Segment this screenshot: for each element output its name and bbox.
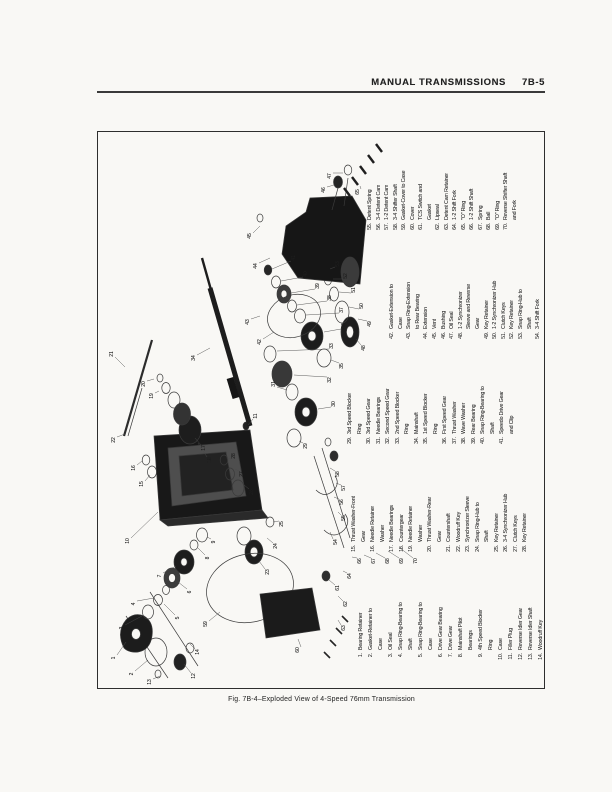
diagram-callout-number: 8 <box>205 557 211 560</box>
legend-item: 35.1st Speed BlockerRing <box>422 386 441 450</box>
diagram-callout-number: 17 <box>201 445 207 451</box>
diagram-callout-number: 53 <box>335 261 341 267</box>
diagram-callout-number: 63 <box>341 625 347 631</box>
legend-item: 31.Needle Bearings <box>375 386 385 450</box>
legend-item: 67.Spring <box>477 171 486 236</box>
diagram-callout-number: 40 <box>303 271 309 277</box>
legend-item: 30.3rd Speed Gear <box>365 386 375 450</box>
legend-item-label: Bearing Retainer <box>356 613 366 650</box>
legend-item-number: 58. <box>392 220 401 236</box>
diagram-callout-number: 39 <box>315 283 321 289</box>
legend-item-label: Needle Bearings <box>388 505 398 542</box>
legend-item-number: 52. <box>508 329 517 345</box>
diagram-callout-number: 59 <box>203 621 209 627</box>
legend-item-number: 44. <box>422 329 431 345</box>
diagram-callout-number: 33 <box>329 343 335 349</box>
diagram-callout-number: 35 <box>339 363 345 369</box>
legend-item: 34.Mainshaft <box>413 386 423 450</box>
legend-item: 16.Needle RetainerWasher <box>369 494 388 558</box>
legend-item-label: Detent Cam Retainer <box>443 173 452 220</box>
diagram-callout-number: 57 <box>341 485 347 491</box>
legend-item: 32.Second Speed Gear <box>384 386 394 450</box>
running-head: MANUAL TRANSMISSIONS7B-5 <box>371 77 545 88</box>
legend-item: 44.Extension <box>422 281 431 345</box>
diagram-callout-number: 47 <box>327 173 333 179</box>
legend-item: 50.1-2 Synchronizer Hub <box>491 281 500 345</box>
legend-column-4: 42.Gasket-Extension toCase43.Snap Ring-E… <box>388 281 543 345</box>
legend-item-label: 3rd Speed Gear <box>365 398 375 434</box>
legend-item: 58.3-4 Shifter Shaft <box>392 171 401 236</box>
diagram-callout-number: 68 <box>385 558 391 564</box>
diagram-callout-number: 69 <box>399 558 405 564</box>
diagram-callout-number: 56 <box>339 499 345 505</box>
legend-item-number: 48. <box>457 329 466 345</box>
legend-item-label: 1-2 Shift Fork <box>451 190 460 220</box>
legend-item-label: Needle RetainerWasher <box>407 506 426 542</box>
diagram-callout-number: 9 <box>211 541 217 544</box>
legend-item: 2.Gasket-Retainer toCase <box>366 602 386 666</box>
legend-item-label: Woodruff Key <box>536 620 545 650</box>
legend-item: 57.1-2 Detent Cam <box>383 171 392 236</box>
legend-item: 63.Detent Cam Retainer <box>443 171 452 236</box>
diagram-callout-number: 13 <box>147 679 153 685</box>
legend-item-number: 62. <box>434 220 443 236</box>
legend-item-label: Thrust Washer-RearGear <box>426 497 445 542</box>
legend-item-label: Detent Spring <box>366 190 375 220</box>
legend-item-label: Snap Ring-Hub toShaft <box>474 502 493 542</box>
legend-item-number: 57. <box>383 220 392 236</box>
legend-item-number: 19. <box>407 542 417 558</box>
legend-item-label: Key Retainer <box>508 300 517 329</box>
legend-item: 8.Mainshaft PilotBearings <box>456 602 476 666</box>
diagram-callout-number: 7 <box>157 575 163 578</box>
legend-item-number: 34. <box>413 434 423 450</box>
legend-item: 42.Gasket-Extension toCase <box>388 281 405 345</box>
legend-item: 21.Countershaft <box>445 494 455 558</box>
legend-item-number: 42. <box>388 329 397 345</box>
diagram-callout-number: 58 <box>335 471 341 477</box>
legend-item: 12.Reverse Idler Gear <box>516 602 526 666</box>
page-number: 7B-5 <box>522 77 545 88</box>
legend-item-number: 25. <box>493 542 503 558</box>
legend-item-label: Second Speed Gear <box>384 389 394 434</box>
diagram-callout-number: 27 <box>239 471 245 477</box>
legend-item-number: 18. <box>398 542 408 558</box>
diagram-callout-number: 37 <box>339 307 345 313</box>
running-head-title: MANUAL TRANSMISSIONS <box>371 77 506 88</box>
legend-item-label: Gasket-Cover to Case <box>400 171 409 220</box>
legend-item-number: 15. <box>350 542 360 558</box>
legend-item-label: Oil Seal <box>386 633 396 650</box>
legend-item-label: Countershaft <box>445 513 455 542</box>
legend-column-5: 55.Detent Spring56.3-4 Detent Cam57.1-2 … <box>366 171 519 236</box>
diagram-callout-number: 64 <box>347 573 353 579</box>
legend-item: 1.Bearing Retainer <box>356 602 366 666</box>
legend-item: 62.Lipseal <box>434 171 443 236</box>
legend-item-number: 9. <box>476 650 486 666</box>
legend-item-label: 2nd Speed BlockerRing <box>394 392 413 434</box>
diagram-callout-number: 5 <box>175 617 181 620</box>
legend-item: 66.1-2 Shift Shaft <box>468 171 477 236</box>
diagram-callout-number: 45 <box>247 233 253 239</box>
legend-item-number: 3. <box>386 650 396 666</box>
legend-item: 38.Wave Washer <box>460 386 470 450</box>
legend-item-number: 35. <box>422 434 432 450</box>
diagram-callout-number: 2 <box>129 673 135 676</box>
legend-item: 53.Snap Ring-Hub toShaft <box>517 281 534 345</box>
legend-item-label: Wave Washer <box>460 403 470 434</box>
legend-item-label: Vent <box>431 319 440 329</box>
legend-item-number: 20. <box>426 542 436 558</box>
legend-item-label: 4th Speed BlockerRing <box>476 609 496 650</box>
legend-item-label: Reverse Idler Shaft <box>526 608 536 651</box>
legend-item-number: 31. <box>375 434 385 450</box>
legend-item: 23.Synchronizer Sleeve <box>464 494 474 558</box>
legend-item: 19.Needle RetainerWasher <box>407 494 426 558</box>
diagram-callout-number: 30 <box>331 401 337 407</box>
diagram-callout-number: 16 <box>131 465 137 471</box>
legend-item-number: 45. <box>431 329 440 345</box>
diagram-callout-number: 66 <box>357 558 363 564</box>
legend-item-label: TCS Switch andGasket <box>417 184 434 220</box>
legend-item-number: 8. <box>456 650 466 666</box>
diagram-callout-number: 38 <box>327 295 333 301</box>
figure-caption: Fig. 7B-4–Exploded View of 4-Speed 76mm … <box>97 696 546 703</box>
legend-item-label: 3-4 Shifter Shaft <box>392 184 401 220</box>
legend-item-label: Bushing <box>440 311 449 329</box>
legend-item-number: 41. <box>498 434 508 450</box>
legend-item: 39.Rear Bearing <box>470 386 480 450</box>
legend-item-number: 39. <box>470 434 480 450</box>
legend-item-number: 24. <box>474 542 484 558</box>
legend-item: 64.1-2 Shift Fork <box>451 171 460 236</box>
legend-item: 65."O" Ring <box>460 171 469 236</box>
legend-item: 13.Reverse Idler Shaft <box>526 602 536 666</box>
legend-item-label: Thrust Washer-FrontGear <box>350 496 369 542</box>
diagram-callout-number: 4 <box>131 603 137 606</box>
legend-item-label: Spring <box>477 206 486 220</box>
legend-item-number: 6. <box>436 650 446 666</box>
legend-item: 4.Snap Ring-Bearing toShaft <box>396 602 416 666</box>
legend-item-label: Snap Ring-Hub toShaft <box>517 289 534 329</box>
diagram-callout-number: 14 <box>195 649 201 655</box>
diagram-callout-number: 6 <box>187 591 193 594</box>
diagram-callout-number: 52 <box>343 273 349 279</box>
legend-item-label: Woodruff Key <box>455 512 465 542</box>
legend-item: 37.Thrust Washer <box>451 386 461 450</box>
legend-item: 56.3-4 Detent Cam <box>375 171 384 236</box>
diagram-callout-number: 34 <box>191 355 197 361</box>
header-rule <box>97 91 545 93</box>
legend-item: 28.Key Retainer <box>521 494 531 558</box>
legend-item: 20.Thrust Washer-RearGear <box>426 494 445 558</box>
legend-item-number: 37. <box>451 434 461 450</box>
legend-item-label: Drive Gear <box>446 626 456 650</box>
legend-item-label: Snap Ring-Extensionto Rear Bearing <box>405 282 422 329</box>
diagram-callout-number: 11 <box>253 413 259 418</box>
legend-item-label: Reverse Idler Gear <box>516 608 526 650</box>
legend-item: 54.3-4 Shift Fork <box>534 281 543 345</box>
legend-item: 14.Woodruff Key <box>536 602 545 666</box>
legend-item: 68.Ball <box>485 171 494 236</box>
figure-box: 1.Bearing Retainer2.Gasket-Retainer toCa… <box>97 131 545 689</box>
legend-item-number: 1. <box>356 650 366 666</box>
legend-item-number: 14. <box>536 650 545 666</box>
legend-item: 52.Key Retainer <box>508 281 517 345</box>
legend-item-label: Mainshaft <box>413 412 423 434</box>
legend-item-number: 61. <box>417 220 426 236</box>
legend-item: 46.Bushing <box>440 281 449 345</box>
legend-item: 36.First Speed Gear <box>441 386 451 450</box>
diagram-callout-number: 49 <box>367 321 373 327</box>
diagram-callout-number: 15 <box>139 481 145 487</box>
diagram-callout-number: 44 <box>253 263 259 269</box>
diagram-callout-number: 54 <box>333 539 339 545</box>
legend-column-3: 29.3rd Speed BlockerRing30.3rd Speed Gea… <box>346 386 517 450</box>
legend-item-label: Clutch Keys <box>512 515 522 542</box>
legend-item-label: Cover <box>409 207 418 220</box>
legend-item: 11.Filler Plug <box>506 602 516 666</box>
legend-item-label: Thrust Washer <box>451 401 461 434</box>
legend-item-number: 50. <box>491 329 500 345</box>
legend-item-label: Speedo Drive Gearand Clip <box>498 391 517 434</box>
legend-item-number: 49. <box>483 329 492 345</box>
legend-item-number: 30. <box>365 434 375 450</box>
legend-item-number: 28. <box>521 542 531 558</box>
legend-item-number: 21. <box>445 542 455 558</box>
legend-item: 60.Cover <box>409 171 418 236</box>
diagram-callout-number: 24 <box>273 543 279 549</box>
diagram-callout-number: 43 <box>245 319 251 325</box>
legend-item-number: 60. <box>409 220 418 236</box>
legend-item-number: 13. <box>526 650 536 666</box>
legend-item-number: 63. <box>443 220 452 236</box>
legend-item-label: Oil Seal <box>448 312 457 329</box>
legend-item-label: 1st Speed BlockerRing <box>422 394 441 434</box>
legend-item-number: 51. <box>500 329 509 345</box>
legend-item: 48.1-2 SynchronizerSleeve and ReverseGea… <box>457 281 483 345</box>
legend-item-number: 54. <box>534 329 543 345</box>
legend-item-label: "O" Ring <box>460 201 469 220</box>
legend-item-label: Ball <box>485 212 494 220</box>
diagram-callout-number: 70 <box>413 558 419 564</box>
legend-item: 45.Vent <box>431 281 440 345</box>
legend-item-label: Mainshaft PilotBearings <box>456 618 476 651</box>
legend-item-number: 59. <box>400 220 409 236</box>
legend-item-number: 26. <box>502 542 512 558</box>
diagram-callout-number: 31 <box>271 381 277 387</box>
legend-item-number: 47. <box>448 329 457 345</box>
legend-item: 15.Thrust Washer-FrontGear <box>350 494 369 558</box>
legend-item-label: Needle RetainerWasher <box>369 506 388 542</box>
diagram-callout-number: 65 <box>355 189 361 195</box>
legend-item-label: 1-2 SynchronizerSleeve and ReverseGear <box>457 284 483 329</box>
legend-item-label: Synchronizer Sleeve <box>464 496 474 542</box>
legend-item-label: Clutch Keys <box>500 302 509 329</box>
legend-item: 47.Oil Seal <box>448 281 457 345</box>
legend-item-label: 1-2 Detent Cam <box>383 185 392 220</box>
legend-item: 17.Needle Bearings <box>388 494 398 558</box>
legend-item-label: "O" Ring <box>494 201 503 220</box>
legend-item: 27.Clutch Keys <box>512 494 522 558</box>
diagram-callout-number: 62 <box>343 601 349 607</box>
legend-item: 22.Woodruff Key <box>455 494 465 558</box>
diagram-callout-number: 42 <box>257 339 263 345</box>
diagram-callout-number: 19 <box>149 393 155 399</box>
diagram-callout-number: 50 <box>359 303 365 309</box>
legend-item-number: 29. <box>346 434 356 450</box>
legend-item-label: First Speed Gear <box>441 396 451 434</box>
legend-item-label: Gasket-Retainer toCase <box>366 608 386 650</box>
legend-item-label: Gasket-Extension toCase <box>388 284 405 329</box>
diagram-callout-number: 28 <box>231 453 237 459</box>
diagram-callout-number: 55 <box>341 515 347 521</box>
legend-item: 33.2nd Speed BlockerRing <box>394 386 413 450</box>
legend-item: 29.3rd Speed BlockerRing <box>346 386 365 450</box>
legend-item-label: 1-2 Shift Shaft <box>468 189 477 220</box>
diagram-callout-number: 23 <box>265 569 271 575</box>
diagram-callout-number: 12 <box>191 673 197 679</box>
legend-item-number: 33. <box>394 434 404 450</box>
diagram-callout-number: 10 <box>125 538 131 544</box>
legend-item: 61.TCS Switch andGasket <box>417 171 434 236</box>
legend-item-label: Snap Ring-Bearing toCase <box>416 602 436 650</box>
rotated-landscape-content: 1.Bearing Retainer2.Gasket-Retainer toCa… <box>98 132 544 688</box>
legend-item: 9.4th Speed BlockerRing <box>476 602 496 666</box>
legend-item-label: Rear Bearing <box>470 405 480 434</box>
legend-item: 5.Snap Ring-Bearing toCase <box>416 602 436 666</box>
legend-item-number: 27. <box>512 542 522 558</box>
diagram-callout-number: 1 <box>111 657 117 660</box>
diagram-callout-number: 26 <box>249 489 255 495</box>
legend-item-label: 3-4 Shift Fork <box>534 299 543 329</box>
legend-item-label: 3-4 Detent Cam <box>375 185 384 220</box>
diagram-callout-number: 32 <box>327 377 333 383</box>
legend-item-number: 12. <box>516 650 526 666</box>
diagram-callout-number: 61 <box>335 585 341 591</box>
legend-item-number: 66. <box>468 220 477 236</box>
legend-item-number: 10. <box>496 650 506 666</box>
legend-item-number: 17. <box>388 542 398 558</box>
legend-item: 6.Drive Gear Bearing <box>436 602 446 666</box>
diagram-callout-number: 22 <box>111 437 117 443</box>
manual-page: { "header": { "title": "MANUAL TRANSMISS… <box>0 0 612 792</box>
legend-item-label: Filler Plug <box>506 628 516 650</box>
legend-item-number: 16. <box>369 542 379 558</box>
legend-item: 51.Clutch Keys <box>500 281 509 345</box>
legend-item-number: 55. <box>366 220 375 236</box>
diagram-callout-number: 48 <box>361 345 367 351</box>
legend-item: 55.Detent Spring <box>366 171 375 236</box>
legend-item: 43.Snap Ring-Extensionto Rear Bearing <box>405 281 422 345</box>
legend-item-number: 68. <box>485 220 494 236</box>
legend-item: 41.Speedo Drive Gearand Clip <box>498 386 517 450</box>
diagram-callout-number: 20 <box>141 381 147 387</box>
diagram-callout-number: 60 <box>295 647 301 653</box>
legend-item-number: 43. <box>405 329 414 345</box>
legend-item: 69."O" Ring <box>494 171 503 236</box>
legend-item: 18.Countergear <box>398 494 408 558</box>
legend-item-label: Key Retainer <box>483 300 492 329</box>
legend-column-1: 1.Bearing Retainer2.Gasket-Retainer toCa… <box>356 602 545 666</box>
legend-item-label: Key Retainer <box>521 513 531 542</box>
diagram-callout-number: 29 <box>303 443 309 449</box>
legend-item-label: 3-4 Synchronizer Hub <box>502 494 512 542</box>
legend-item-number: 69. <box>494 220 503 236</box>
legend-item: 49.Key Retainer <box>483 281 492 345</box>
legend-item-number: 36. <box>441 434 451 450</box>
legend-item: 40.Snap Ring-Bearing toShaft <box>479 386 498 450</box>
legend-column-2: 15.Thrust Washer-FrontGear16.Needle Reta… <box>350 494 531 558</box>
legend-item-number: 64. <box>451 220 460 236</box>
legend-item-number: 56. <box>375 220 384 236</box>
legend-item-number: 67. <box>477 220 486 236</box>
legend-item-number: 65. <box>460 220 469 236</box>
legend-item-label: Case <box>496 638 506 650</box>
diagram-callout-number: 51 <box>351 287 357 293</box>
diagram-callout-number: 46 <box>321 187 327 193</box>
legend-item-number: 32. <box>384 434 394 450</box>
legend-item-number: 7. <box>446 650 456 666</box>
diagram-callout-number: 21 <box>109 351 115 357</box>
legend-item-number: 2. <box>366 650 376 666</box>
legend-item: 10.Case <box>496 602 506 666</box>
legend-item-number: 38. <box>460 434 470 450</box>
legend-item: 7.Drive Gear <box>446 602 456 666</box>
legend-item-number: 70. <box>502 220 511 236</box>
legend-item-label: Needle Bearings <box>375 397 385 434</box>
legend-item-number: 46. <box>440 329 449 345</box>
legend-item-number: 53. <box>517 329 526 345</box>
diagram-callout-number: 36 <box>341 323 347 329</box>
legend-item-label: Key Retainer <box>493 513 503 542</box>
diagram-callout-number: 41 <box>291 255 297 261</box>
legend-item-number: 4. <box>396 650 406 666</box>
legend-item: 70.Reverse Shifter Shaftand Fork <box>502 171 519 236</box>
legend-item-number: 5. <box>416 650 426 666</box>
legend-item-label: Snap Ring-Bearing toShaft <box>396 602 416 650</box>
legend-item-label: Extension <box>422 307 431 329</box>
legend-item-label: Drive Gear Bearing <box>436 607 446 650</box>
legend-item-label: 1-2 Synchronizer Hub <box>491 281 500 329</box>
legend-item: 25.Key Retainer <box>493 494 503 558</box>
diagram-callout-number: 67 <box>371 558 377 564</box>
diagram-callout-number: 25 <box>279 521 285 527</box>
legend-item: 59.Gasket-Cover to Case <box>400 171 409 236</box>
legend-item-number: 40. <box>479 434 489 450</box>
diagram-callout-number: 18 <box>207 457 213 463</box>
legend-item: 26.3-4 Synchronizer Hub <box>502 494 512 558</box>
legend-item-label: Lipseal <box>434 204 443 220</box>
legend-item-label: Snap Ring-Bearing toShaft <box>479 386 498 434</box>
legend-item: 3.Oil Seal <box>386 602 396 666</box>
diagram-callout-number: 3 <box>119 627 125 630</box>
legend-item: 24.Snap Ring-Hub toShaft <box>474 494 493 558</box>
legend-item-label: Reverse Shifter Shaftand Fork <box>502 173 519 220</box>
legend-item-number: 22. <box>455 542 465 558</box>
legend-item-label: Countergear <box>398 514 408 542</box>
legend-item-number: 11. <box>506 650 516 666</box>
legend-item-number: 23. <box>464 542 474 558</box>
legend-item-label: 3rd Speed BlockerRing <box>346 393 365 434</box>
